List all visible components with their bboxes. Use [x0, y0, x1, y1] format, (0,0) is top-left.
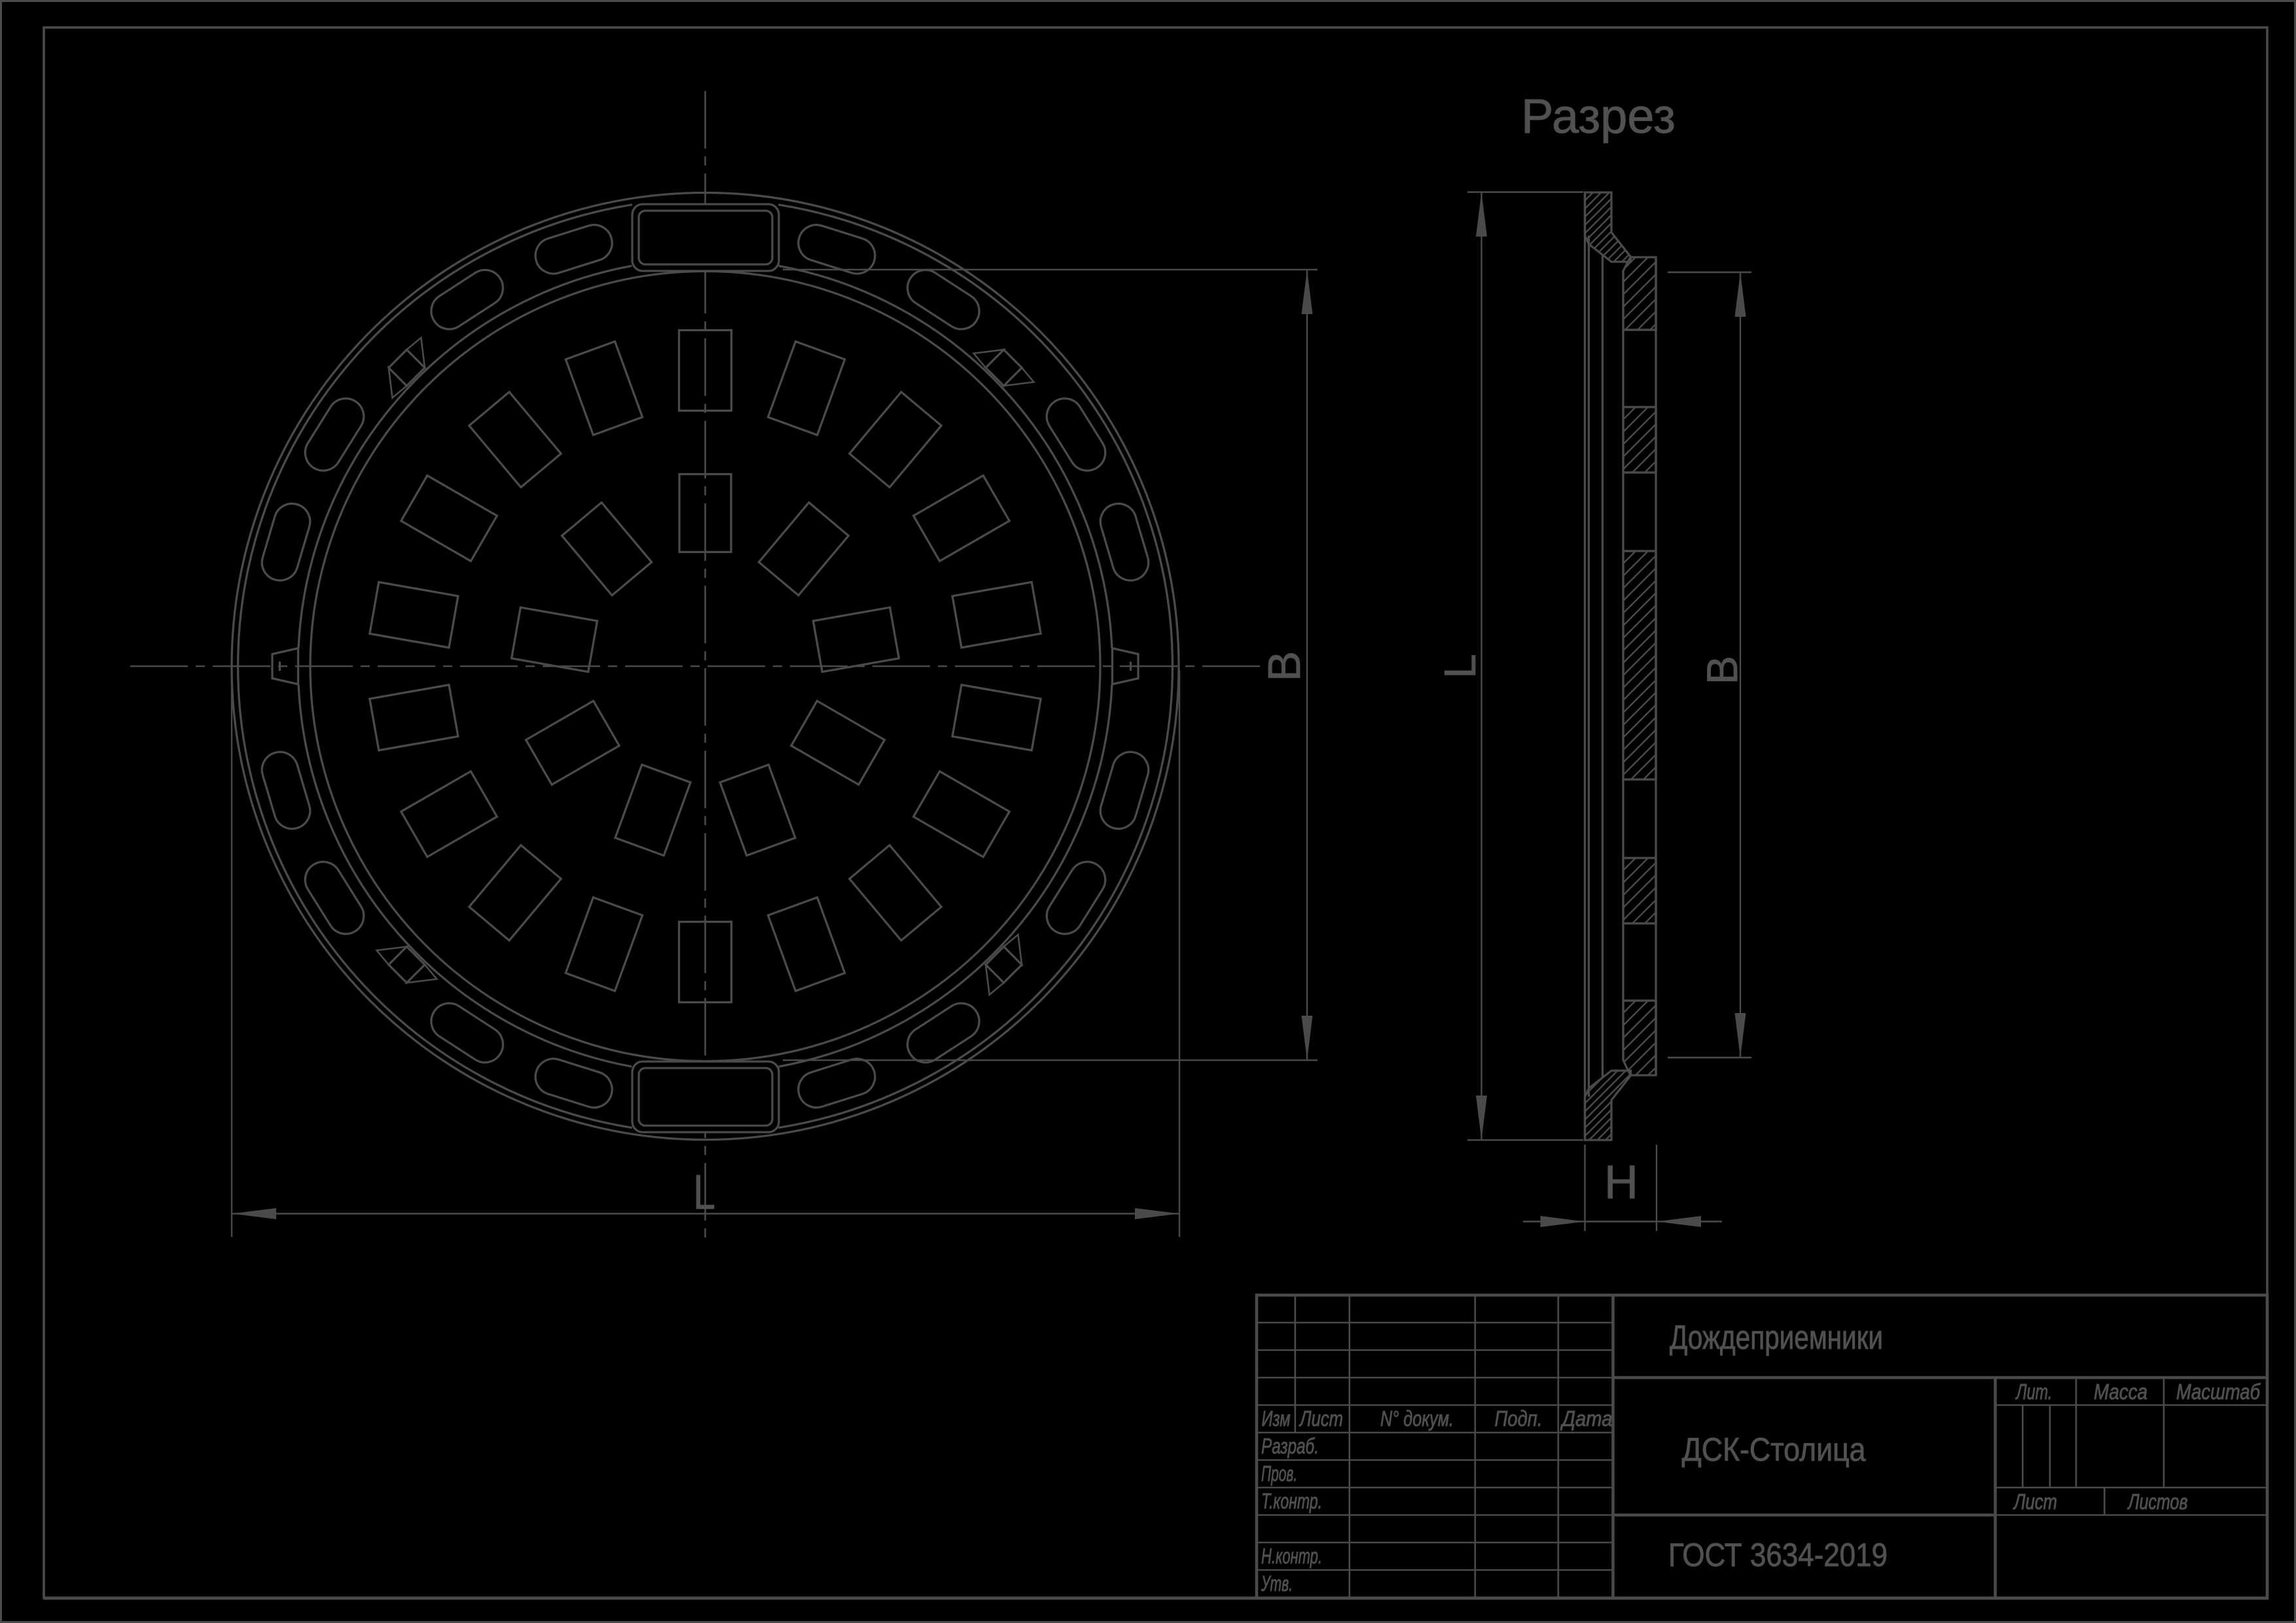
svg-text:Н.контр.: Н.контр.	[1261, 1544, 1322, 1568]
svg-text:Лист: Лист	[2013, 1489, 2057, 1514]
svg-text:ГОСТ 3634-2019: ГОСТ 3634-2019	[1668, 1537, 1888, 1573]
svg-text:Пров.: Пров.	[1261, 1461, 1297, 1486]
svg-text:ДСК-Столица: ДСК-Столица	[1682, 1431, 1866, 1468]
svg-text:Подп.: Подп.	[1495, 1406, 1543, 1431]
svg-text:Разрез: Разрез	[1521, 89, 1676, 143]
svg-text:B: B	[1698, 656, 1746, 685]
svg-text:Масштаб: Масштаб	[2176, 1380, 2261, 1404]
svg-text:Утв.: Утв.	[1261, 1571, 1293, 1596]
svg-text:Масса: Масса	[2094, 1380, 2147, 1404]
svg-text:Лит.: Лит.	[2015, 1380, 2052, 1404]
svg-text:Разраб.: Разраб.	[1261, 1434, 1319, 1458]
svg-text:Листов: Листов	[2127, 1489, 2188, 1514]
svg-text:Дата: Дата	[1560, 1406, 1613, 1431]
svg-text:L: L	[693, 1165, 715, 1219]
svg-text:N° докум.: N° докум.	[1380, 1406, 1454, 1431]
svg-text:L: L	[1435, 654, 1485, 679]
svg-text:Лист: Лист	[1299, 1406, 1343, 1431]
svg-text:Дождеприемники: Дождеприемники	[1670, 1319, 1883, 1356]
svg-text:Изм: Изм	[1262, 1406, 1291, 1431]
svg-text:Т.контр.: Т.контр.	[1261, 1489, 1322, 1513]
svg-text:B: B	[1259, 651, 1310, 682]
svg-text:H: H	[1604, 1156, 1638, 1209]
